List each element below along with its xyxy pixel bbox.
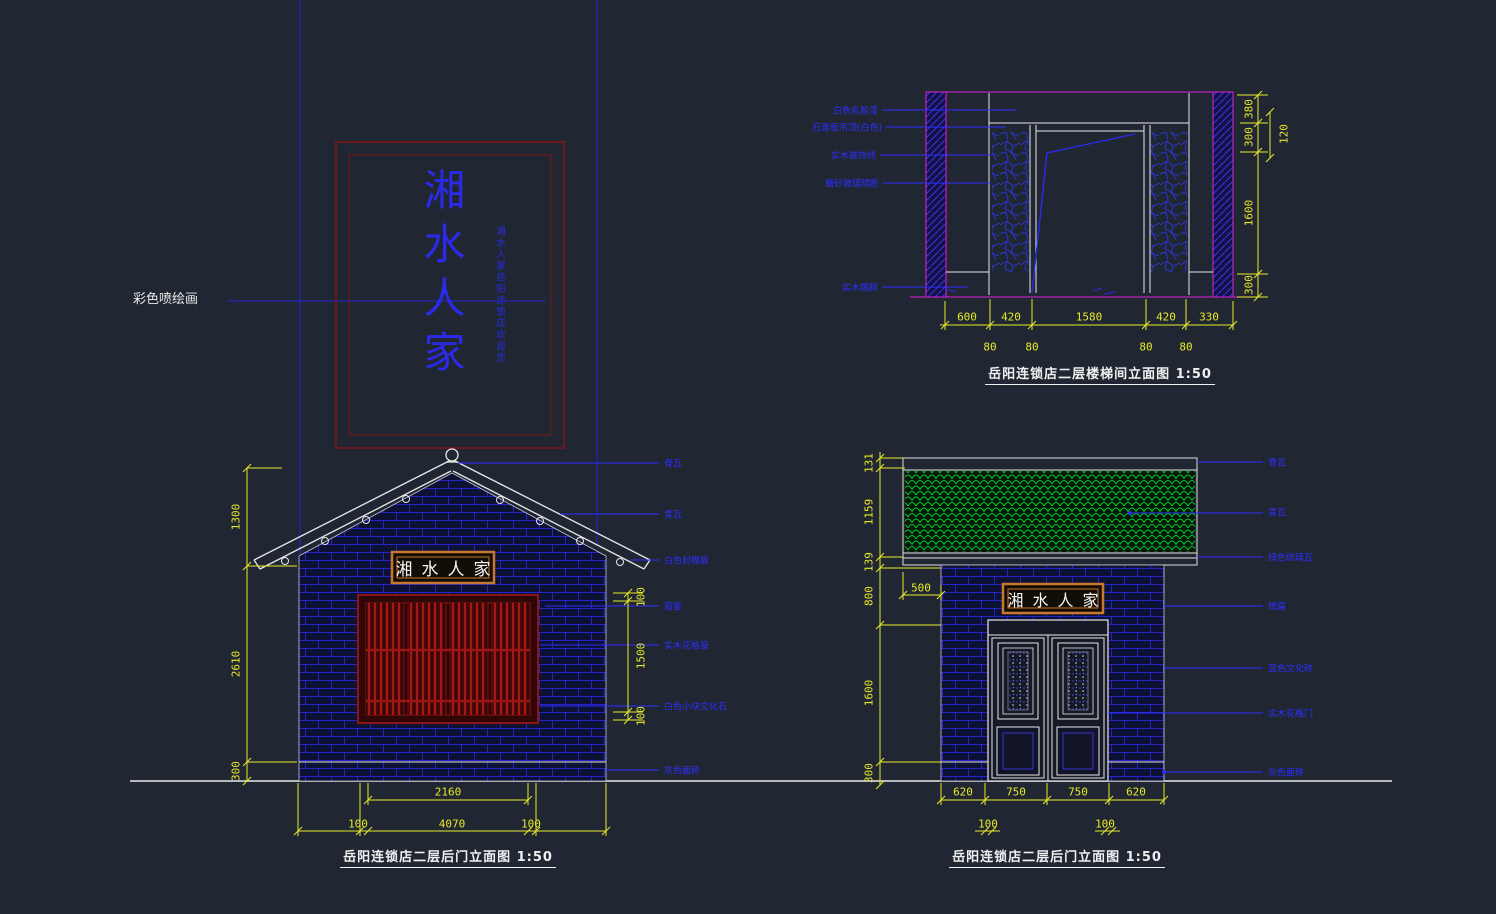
stair-note-3: 实木装饰线 [831,149,876,162]
left-note-1: 脊瓦 [664,457,682,470]
right-plaque-text: 湘水人家 [1003,584,1103,613]
right-note-6: 实木花格门 [1268,707,1313,720]
dim-330: 330 [1199,311,1219,324]
dim-80-3: 80 [1139,341,1152,354]
stair-note-5: 实木踢脚 [842,281,878,294]
dim-100-r2: 100 [1095,818,1115,831]
dim-120: 120 [1278,124,1291,144]
stair-handrail-line [1032,134,1135,293]
right-title: 岳阳连锁店二层后门立面图 1:50 [949,846,1165,868]
dim-420-right: 420 [1156,311,1176,324]
right-note-7: 灰色面砖 [1268,766,1304,779]
right-note-5: 蓝色文化砖 [1268,662,1313,675]
dim-750-right: 750 [1068,786,1088,799]
stair-note-4: 磨砂玻璃隔断 [825,177,879,190]
dim-80-2: 80 [1025,341,1038,354]
banner-annotation: 彩色喷绘画 [133,288,198,307]
green-tile-roof [903,458,1197,565]
dim-420-left: 420 [1001,311,1021,324]
left-note-3: 白色封檐板 [664,554,709,567]
stair-elevation [880,91,1274,330]
dim-100-right: 100 [521,818,541,831]
dim-131: 131 [863,453,876,473]
roof-finial [446,449,458,461]
left-plaque-text: 湘水人家 [392,552,494,583]
right-note-3: 绿色琉璃瓦 [1268,551,1313,564]
banner-side-text: 湘水人家岳阳连锁店欢迎您 [492,226,506,358]
left-note-7: 灰色面砖 [664,764,700,777]
banner-sign [228,0,597,562]
dim-80-1: 80 [983,341,996,354]
dim-750-left: 750 [1006,786,1026,799]
dim-620-right: 620 [1126,786,1146,799]
dim-100-left: 100 [348,818,368,831]
banner-main-text: 湘水人家 [420,168,462,393]
lattice-panel-right [1151,132,1187,272]
dim-2610: 2610 [230,651,243,678]
red-lattice-window [358,595,538,723]
stair-note-1: 白色乳胶漆 [833,104,878,117]
dim-1600-right: 1600 [863,680,876,707]
left-note-4: 窗套 [664,600,682,613]
right-note-2: 青瓦 [1268,506,1286,519]
dim-300-upper: 300 [1243,127,1256,147]
dim-80-4: 80 [1179,341,1192,354]
dim-800: 800 [863,586,876,606]
left-note-5: 实木花格窗 [664,639,709,652]
dim-1300: 1300 [230,504,243,531]
dim-window-100-top: 100 [635,587,648,607]
dim-1159: 1159 [863,499,876,526]
dim-window-1500: 1500 [635,643,648,670]
dim-1600: 1600 [1243,200,1256,227]
dim-500: 500 [911,582,931,595]
lattice-panel-left [992,132,1029,272]
dim-600: 600 [957,311,977,324]
dim-380: 380 [1243,99,1256,119]
left-title: 岳阳连锁店二层后门立面图 1:50 [340,846,556,868]
dim-139: 139 [863,552,876,572]
right-note-4: 牌匾 [1268,600,1286,613]
dim-620-left: 620 [953,786,973,799]
dim-4070: 4070 [439,818,466,831]
dim-300-lower: 300 [1243,275,1256,295]
stair-title: 岳阳连锁店二层楼梯间立面图 1:50 [985,363,1215,385]
stair-note-2: 石膏板吊顶(白色) [812,121,882,134]
dim-300-base-right: 300 [863,763,876,783]
dim-2160: 2160 [435,786,462,799]
dim-300-base-left: 300 [230,761,243,781]
cad-drawing-canvas: 彩色喷绘画 湘水人家 湘水人家岳阳连锁店欢迎您 白色乳胶漆 石膏板吊顶(白色) … [0,0,1496,914]
right-door-elevation [876,452,1263,835]
left-note-6: 白色小块文化石 [664,700,727,713]
dim-1580: 1580 [1076,311,1103,324]
dim-window-100-bottom: 100 [635,706,648,726]
right-note-1: 脊瓦 [1268,456,1286,469]
double-door [988,620,1108,781]
dim-100-r1: 100 [978,818,998,831]
left-note-2: 青瓦 [664,508,682,521]
